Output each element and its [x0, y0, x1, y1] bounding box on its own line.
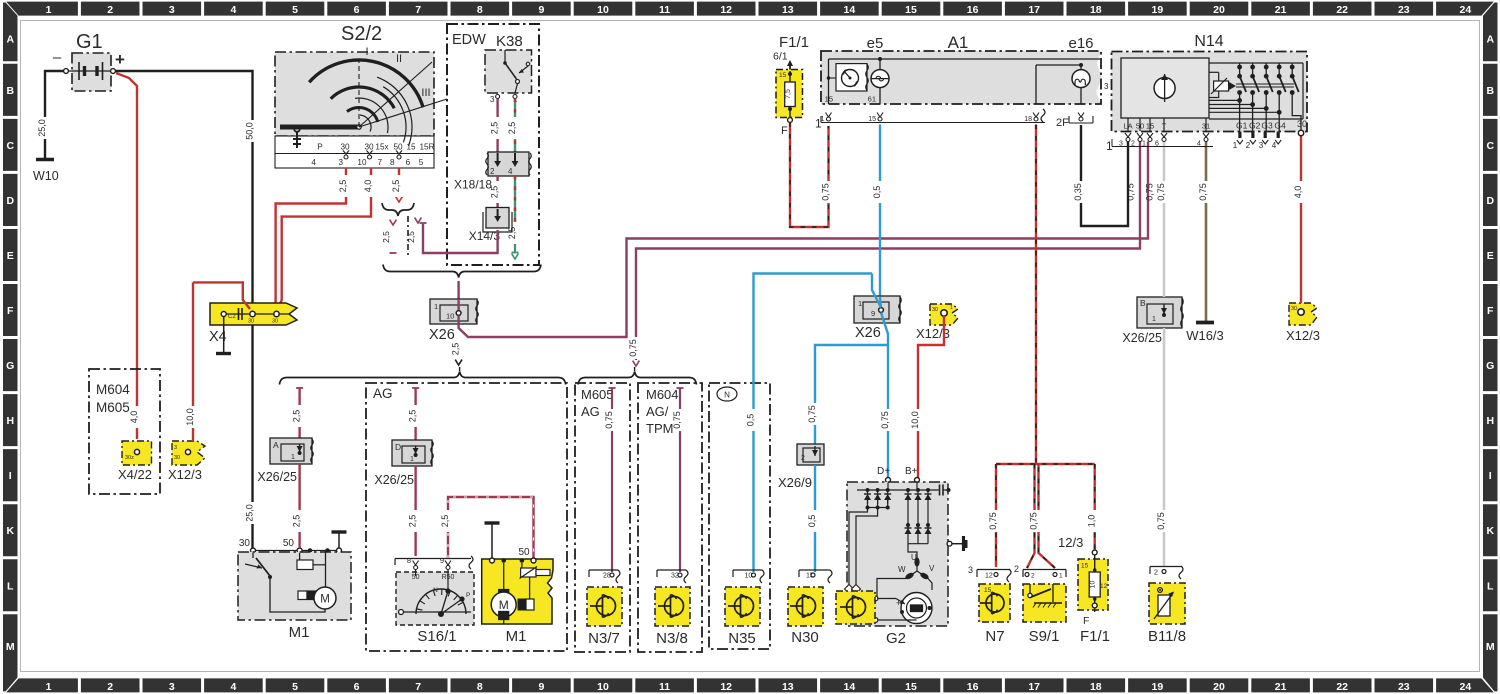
svg-text:1: 1	[434, 302, 438, 311]
svg-text:M1: M1	[506, 628, 527, 645]
svg-text:30: 30	[340, 143, 350, 152]
svg-text:2,5: 2,5	[507, 122, 517, 135]
svg-text:X12/3: X12/3	[168, 467, 202, 482]
svg-text:I: I	[9, 470, 12, 482]
svg-text:2F: 2F	[1056, 117, 1069, 129]
svg-text:A: A	[1486, 34, 1494, 46]
svg-text:10,0: 10,0	[910, 411, 920, 429]
svg-text:E: E	[7, 250, 14, 262]
svg-text:25,0: 25,0	[37, 119, 47, 137]
svg-text:3: 3	[169, 681, 175, 693]
svg-text:30: 30	[272, 319, 278, 325]
svg-text:30: 30	[174, 455, 180, 461]
svg-text:24: 24	[1460, 681, 1472, 693]
svg-text:10: 10	[597, 681, 609, 693]
svg-text:2: 2	[107, 681, 113, 693]
svg-text:0,75: 0,75	[604, 411, 614, 429]
svg-text:4: 4	[230, 4, 236, 16]
svg-text:4: 4	[311, 158, 316, 167]
svg-text:V: V	[929, 564, 935, 573]
svg-text:D: D	[1486, 195, 1494, 207]
svg-text:N3/8: N3/8	[656, 630, 688, 647]
svg-text:5: 5	[292, 4, 298, 16]
svg-text:25,0: 25,0	[245, 504, 255, 522]
svg-text:AG: AG	[373, 386, 393, 401]
svg-text:0,75: 0,75	[1198, 183, 1208, 201]
svg-text:H: H	[1486, 415, 1494, 427]
svg-text:G4: G4	[1274, 121, 1286, 131]
svg-text:X26/25: X26/25	[374, 473, 414, 487]
svg-text:12: 12	[720, 681, 732, 693]
svg-text:3: 3	[1104, 82, 1109, 91]
svg-text:1,0: 1,0	[1087, 515, 1097, 528]
svg-text:1: 1	[46, 4, 52, 16]
svg-text:2: 2	[1246, 141, 1251, 150]
svg-text:U: U	[911, 553, 917, 562]
svg-text:0,75: 0,75	[807, 405, 817, 423]
svg-text:8: 8	[407, 556, 411, 565]
svg-text:G2: G2	[1249, 121, 1261, 131]
svg-text:P: P	[466, 592, 470, 599]
svg-text:15R: 15R	[419, 143, 434, 152]
svg-text:4: 4	[230, 681, 236, 693]
svg-text:W: W	[898, 565, 906, 574]
svg-text:G: G	[1486, 360, 1494, 372]
svg-text:2,5: 2,5	[490, 186, 500, 199]
svg-text:G2: G2	[886, 630, 906, 647]
svg-text:D: D	[395, 442, 401, 452]
svg-text:B11/8: B11/8	[1148, 628, 1186, 645]
svg-text:F: F	[781, 125, 788, 137]
svg-text:3: 3	[1259, 141, 1264, 150]
svg-text:1: 1	[950, 305, 953, 311]
svg-text:3: 3	[490, 95, 495, 104]
svg-text:M: M	[1486, 641, 1495, 653]
svg-text:24: 24	[1460, 4, 1472, 16]
svg-text:6/1: 6/1	[773, 51, 788, 63]
svg-text:19: 19	[1152, 681, 1164, 693]
svg-text:K38: K38	[496, 33, 523, 50]
svg-text:2,5: 2,5	[391, 180, 401, 193]
svg-text:A: A	[6, 34, 14, 46]
svg-text:1: 1	[410, 456, 414, 463]
svg-text:N3/7: N3/7	[588, 630, 620, 647]
svg-text:5: 5	[292, 681, 298, 693]
svg-text:2: 2	[1014, 564, 1019, 574]
svg-text:0,75: 0,75	[988, 512, 998, 530]
svg-text:2: 2	[801, 455, 805, 462]
svg-text:A1: A1	[948, 33, 969, 52]
svg-text:F: F	[1487, 305, 1494, 317]
svg-text:19: 19	[1152, 4, 1164, 16]
svg-text:0,75: 0,75	[1156, 512, 1166, 530]
svg-text:50,0: 50,0	[245, 122, 255, 140]
svg-text:1: 1	[1152, 316, 1156, 323]
svg-text:16: 16	[967, 4, 979, 16]
svg-text:B: B	[1140, 298, 1146, 308]
svg-text:3: 3	[968, 565, 973, 575]
svg-text:13: 13	[782, 681, 794, 693]
svg-text:30: 30	[932, 307, 938, 313]
svg-text:AG/: AG/	[646, 404, 669, 419]
svg-text:22: 22	[1336, 681, 1348, 693]
svg-text:N14: N14	[1194, 33, 1223, 50]
svg-text:E: E	[1487, 250, 1494, 262]
svg-text:S9/1: S9/1	[1029, 628, 1060, 645]
svg-text:50: 50	[393, 143, 403, 152]
svg-text:G: G	[6, 360, 14, 372]
svg-text:12: 12	[720, 4, 732, 16]
svg-text:30: 30	[1291, 306, 1297, 312]
svg-text:0,5: 0,5	[807, 515, 817, 528]
svg-text:22: 22	[1336, 4, 1348, 16]
svg-text:18: 18	[1024, 116, 1032, 123]
svg-text:15: 15	[1081, 563, 1089, 570]
svg-text:S16/1: S16/1	[417, 628, 456, 645]
svg-text:1: 1	[291, 454, 295, 461]
svg-text:2,5: 2,5	[292, 410, 302, 423]
svg-text:0,5: 0,5	[872, 186, 882, 199]
svg-text:6: 6	[354, 681, 360, 693]
svg-text:X18/18: X18/18	[454, 178, 492, 192]
svg-text:30: 30	[248, 319, 254, 325]
svg-text:3: 3	[338, 158, 343, 167]
svg-text:4,0: 4,0	[129, 411, 139, 424]
svg-text:7,5: 7,5	[785, 89, 792, 99]
svg-text:EDW: EDW	[452, 32, 486, 48]
svg-text:G1: G1	[76, 31, 103, 53]
svg-text:·N: ·N	[431, 587, 438, 594]
svg-text:N7: N7	[985, 628, 1004, 645]
svg-text:30z: 30z	[125, 455, 134, 461]
svg-text:15: 15	[868, 116, 876, 123]
svg-text:–: –	[53, 49, 62, 66]
svg-text:M604: M604	[646, 387, 679, 402]
svg-text:15: 15	[984, 587, 992, 594]
svg-text:12: 12	[985, 573, 993, 580]
svg-text:14: 14	[844, 681, 856, 693]
svg-text:4: 4	[508, 167, 513, 176]
svg-text:30: 30	[239, 538, 251, 549]
svg-text:15x: 15x	[375, 143, 388, 152]
svg-text:A: A	[273, 440, 279, 450]
svg-text:M605: M605	[96, 400, 130, 415]
svg-text:10: 10	[446, 312, 454, 321]
svg-text:0,75: 0,75	[1145, 183, 1155, 201]
svg-text:S2/2: S2/2	[341, 23, 382, 45]
svg-text:15: 15	[905, 681, 917, 693]
svg-text:12: 12	[1100, 583, 1108, 590]
svg-text:8: 8	[477, 4, 483, 16]
svg-text:11: 11	[659, 4, 670, 16]
svg-text:0,35: 0,35	[1073, 183, 1083, 201]
svg-text:G1: G1	[1236, 121, 1248, 131]
svg-text:2,5: 2,5	[408, 410, 418, 423]
svg-text:50: 50	[283, 538, 295, 549]
svg-text:9: 9	[538, 4, 544, 16]
svg-text:0,75: 0,75	[1156, 183, 1166, 201]
svg-text:50: 50	[518, 547, 530, 558]
svg-text:I: I	[1489, 470, 1492, 482]
svg-text:2,5: 2,5	[451, 343, 461, 356]
svg-text:D+: D+	[877, 466, 890, 477]
svg-text:7: 7	[415, 4, 421, 16]
svg-text:1: 1	[858, 299, 862, 308]
svg-text:K: K	[1486, 525, 1494, 537]
svg-text:II: II	[396, 53, 402, 65]
svg-text:2,5: 2,5	[292, 515, 302, 528]
svg-text:H: H	[6, 415, 14, 427]
svg-text:M604: M604	[96, 382, 130, 397]
svg-text:0,5: 0,5	[746, 414, 756, 427]
svg-text:0,75: 0,75	[628, 339, 638, 357]
svg-text:+: +	[115, 50, 125, 69]
svg-text:9: 9	[440, 556, 444, 565]
svg-text:17: 17	[1028, 4, 1040, 16]
svg-text:2,5: 2,5	[381, 231, 391, 243]
svg-text:9: 9	[538, 681, 544, 693]
svg-text:20: 20	[1213, 681, 1225, 693]
svg-text:F: F	[7, 305, 14, 317]
svg-text:15: 15	[825, 95, 833, 104]
svg-text:M: M	[6, 641, 15, 653]
svg-text:W10: W10	[33, 169, 59, 183]
svg-text:2: 2	[107, 4, 113, 16]
svg-text:23: 23	[1398, 681, 1410, 693]
svg-text:N35: N35	[728, 630, 756, 647]
svg-text:4: 4	[1272, 141, 1277, 150]
svg-text:18: 18	[1090, 681, 1102, 693]
svg-text:3: 3	[169, 4, 175, 16]
svg-text:0,75: 0,75	[1029, 512, 1039, 530]
svg-text:2,5: 2,5	[338, 180, 348, 193]
svg-text:B+: B+	[905, 466, 918, 477]
svg-text:X14/3: X14/3	[469, 229, 501, 243]
svg-text:10: 10	[597, 4, 609, 16]
svg-text:X26: X26	[855, 325, 881, 341]
svg-text:30: 30	[364, 143, 374, 152]
svg-text:D: D	[6, 195, 14, 207]
svg-text:6: 6	[354, 4, 360, 16]
svg-text:13: 13	[782, 4, 794, 16]
svg-text:15: 15	[406, 143, 416, 152]
svg-text:N: N	[724, 391, 730, 400]
svg-text:L: L	[7, 580, 14, 592]
svg-text:e5: e5	[867, 35, 884, 52]
svg-text:9: 9	[871, 309, 875, 318]
svg-text:P: P	[317, 143, 323, 152]
svg-text:2: 2	[1154, 570, 1158, 577]
svg-text:2: 2	[490, 167, 495, 176]
svg-text:5: 5	[419, 158, 424, 167]
svg-text:2: 2	[1031, 573, 1035, 580]
svg-text:10: 10	[357, 158, 367, 167]
svg-text:X12/3: X12/3	[1286, 328, 1320, 343]
svg-text:III: III	[421, 87, 430, 99]
svg-text:0,75: 0,75	[880, 411, 890, 429]
svg-text:7: 7	[378, 158, 383, 167]
svg-text:10,0: 10,0	[185, 408, 195, 426]
svg-text:M605: M605	[581, 387, 614, 402]
svg-text:11: 11	[659, 681, 670, 693]
svg-text:23: 23	[1398, 4, 1410, 16]
svg-text:30: 30	[1297, 119, 1307, 129]
svg-text:C: C	[1486, 140, 1494, 152]
svg-text:2,5: 2,5	[408, 515, 418, 528]
svg-text:B: B	[1486, 85, 1494, 97]
svg-text:X26/25: X26/25	[257, 470, 297, 484]
svg-text:L: L	[1487, 580, 1494, 592]
svg-text:21: 21	[1275, 681, 1287, 693]
svg-text:M1: M1	[289, 624, 310, 641]
svg-text:X26/9: X26/9	[778, 475, 812, 490]
svg-text:B: B	[6, 85, 14, 97]
svg-text:X4/22: X4/22	[118, 467, 152, 482]
svg-text:2,5: 2,5	[440, 515, 450, 528]
svg-text:C2: C2	[228, 314, 236, 320]
svg-text:15: 15	[779, 72, 787, 79]
svg-text:14: 14	[844, 4, 856, 16]
svg-text:10: 10	[1090, 581, 1097, 589]
svg-text:18: 18	[1090, 4, 1102, 16]
svg-text:1: 1	[46, 681, 52, 693]
svg-text:K: K	[6, 525, 14, 537]
svg-text:3: 3	[174, 445, 177, 451]
svg-text:W16/3: W16/3	[1186, 328, 1224, 343]
svg-text:F: F	[1083, 615, 1089, 627]
svg-text:e16: e16	[1068, 35, 1093, 52]
svg-text:1: 1	[815, 117, 822, 131]
svg-text:1: 1	[1233, 141, 1238, 150]
svg-text:M: M	[320, 594, 330, 606]
svg-text:16: 16	[967, 681, 979, 693]
svg-text:AG: AG	[581, 404, 600, 419]
svg-text:61: 61	[868, 95, 876, 104]
svg-text:M: M	[499, 598, 509, 612]
svg-text:F1/1: F1/1	[779, 34, 809, 51]
svg-text:2,5: 2,5	[490, 122, 500, 135]
svg-text:X26: X26	[429, 327, 455, 343]
svg-text:15: 15	[905, 4, 917, 16]
svg-text:7: 7	[415, 681, 421, 693]
svg-text:F1/1: F1/1	[1080, 628, 1110, 645]
svg-text:6: 6	[406, 158, 411, 167]
svg-text:I: I	[365, 46, 368, 58]
svg-text:1: 1	[1059, 573, 1063, 580]
svg-text:C: C	[6, 140, 14, 152]
svg-text:0,75: 0,75	[821, 183, 831, 201]
svg-text:0,75: 0,75	[672, 411, 682, 429]
svg-text:17: 17	[1028, 681, 1040, 693]
svg-text:8: 8	[477, 681, 483, 693]
svg-text:TPM: TPM	[646, 421, 673, 436]
svg-text:G3: G3	[1261, 121, 1273, 131]
svg-text:21: 21	[1275, 4, 1287, 16]
svg-text:X26/25: X26/25	[1122, 331, 1162, 345]
svg-text:4,0: 4,0	[363, 180, 373, 193]
svg-text:4,0: 4,0	[1293, 186, 1303, 199]
svg-text:8: 8	[390, 158, 395, 167]
svg-text:N30: N30	[791, 629, 819, 646]
svg-text:20: 20	[1213, 4, 1225, 16]
svg-text:12/3: 12/3	[1058, 535, 1083, 550]
